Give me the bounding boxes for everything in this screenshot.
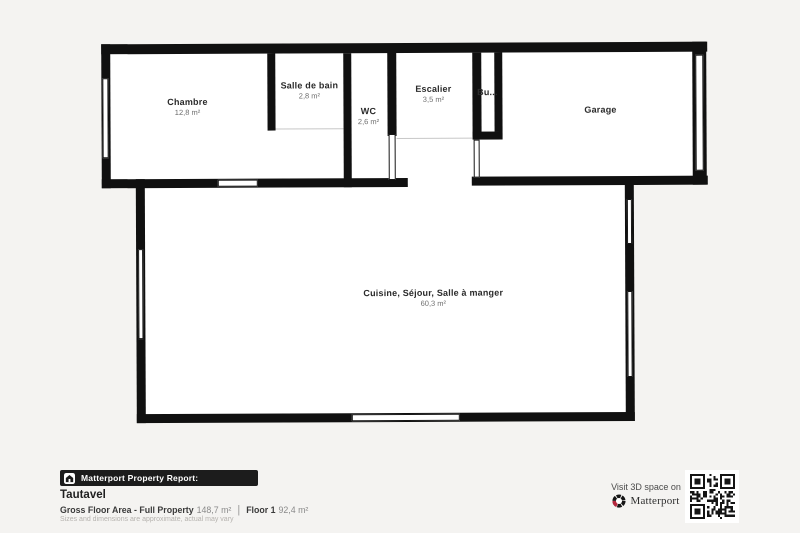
room-name: Salle de bain (281, 80, 339, 91)
property-name: Tautavel (60, 489, 106, 501)
floor-value: 92,4 m² (279, 505, 309, 515)
room-name: Bu... (477, 87, 498, 98)
window-living-right-lower (627, 291, 632, 377)
area-metrics: Gross Floor Area - Full Property 148,7 m… (60, 504, 308, 516)
room-name: Garage (584, 105, 616, 116)
gross-area-value: 148,7 m² (197, 505, 232, 515)
matterport-property-report: Chambre 12,8 m² Salle de bain 2,8 m² WC … (0, 0, 800, 533)
window-living-left (138, 249, 143, 339)
matterport-logo-icon (612, 494, 626, 508)
gross-area-label: Gross Floor Area - Full Property (60, 505, 194, 515)
room-name: WC (358, 106, 379, 117)
room-label-bedroom: Chambre 12,8 m² (167, 97, 208, 117)
room-label-laundry: Bu... (477, 87, 498, 98)
wall-wc-right (387, 53, 396, 136)
room-name: Escalier (415, 84, 451, 95)
window-living-bottom (352, 414, 460, 421)
matterport-brand: Matterport (598, 494, 694, 508)
room-label-stairs: Escalier 3,5 m² (415, 84, 451, 104)
room-area: 2,8 m² (281, 91, 339, 100)
visit-3d-text: Visit 3D space on (598, 482, 694, 492)
wall-garage-bottom (472, 176, 708, 186)
wall-laundry-bottom (473, 132, 503, 140)
metrics-separator: | (237, 504, 240, 516)
wall-bedroom-bathroom-divider (267, 54, 275, 131)
window-bedroom-left (102, 78, 108, 158)
room-label-bathroom: Salle de bain 2,8 m² (281, 80, 339, 100)
room-label-wc: WC 2,6 m² (358, 106, 379, 126)
matterport-wordmark: Matterport (630, 495, 679, 507)
window-living-right-upper (627, 199, 632, 244)
report-badge-label: Matterport Property Report: (81, 473, 198, 483)
room-area: 12,8 m² (167, 108, 207, 117)
room-area: 3,5 m² (415, 95, 451, 104)
room-name: Chambre (167, 97, 207, 108)
room-area: 2,6 m² (358, 117, 379, 126)
report-badge: Matterport Property Report: (60, 470, 258, 486)
house-icon (64, 473, 75, 484)
room-label-living: Cuisine, Séjour, Salle à manger 60,3 m² (363, 288, 503, 309)
floor-label: Floor 1 (246, 505, 275, 515)
floor-plan: Chambre 12,8 m² Salle de bain 2,8 m² WC … (0, 0, 800, 462)
disclaimer-text: Sizes and dimensions are approximate, ac… (60, 516, 234, 523)
wall-wc-left (343, 53, 352, 187)
room-name: Cuisine, Séjour, Salle à manger (363, 288, 503, 300)
garage-door-right (695, 55, 704, 171)
door-garage (474, 140, 480, 178)
room-label-garage: Garage (584, 105, 616, 116)
qr-code (685, 470, 739, 523)
door-wc (389, 134, 396, 180)
qr-pattern (690, 474, 735, 519)
room-area: 60,3 m² (363, 299, 503, 309)
window-bedroom-bottom (218, 180, 258, 187)
